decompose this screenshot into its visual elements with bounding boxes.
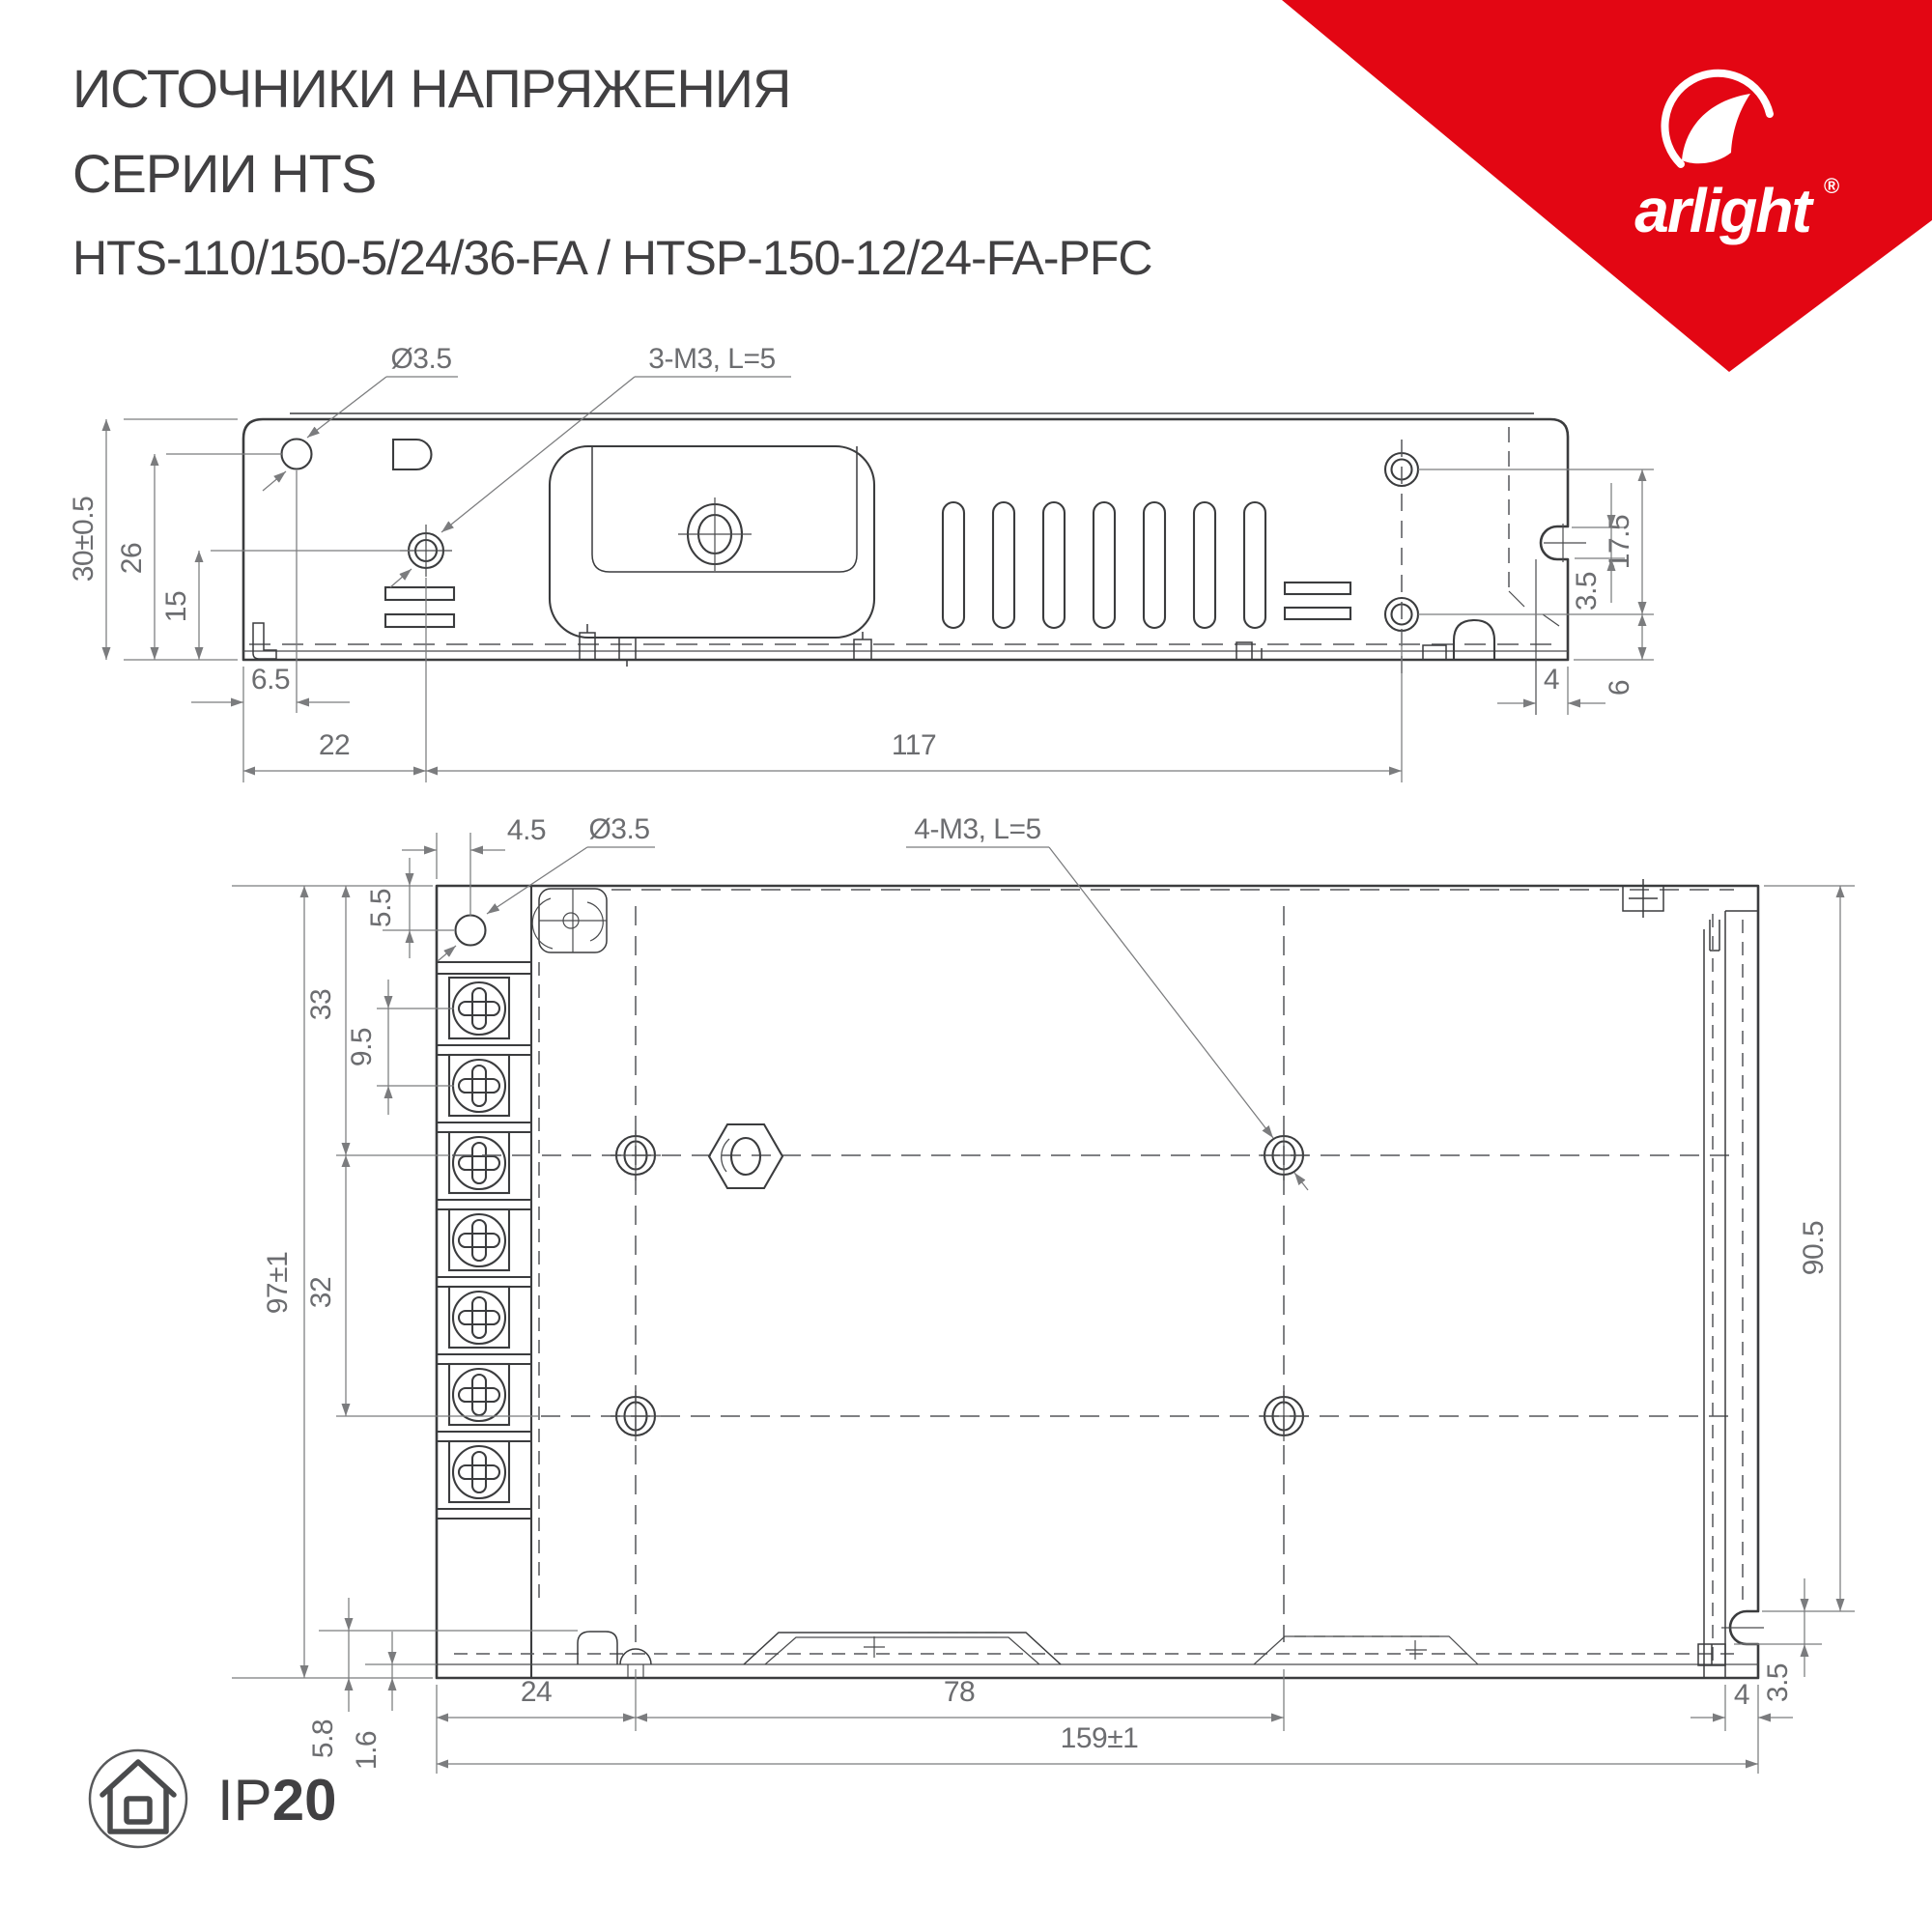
ip-rating-text: IP20 (217, 1768, 336, 1833)
ip-value: 20 (272, 1768, 337, 1833)
side-arch-tab (1454, 620, 1494, 660)
brand-corner: arlight ® (1282, 0, 1932, 372)
ip-prefix: IP (217, 1768, 272, 1833)
indoor-use-icon (102, 1762, 174, 1832)
side-slot (385, 614, 454, 627)
terminal-cell (437, 1209, 531, 1287)
dim-plan-row1-top: 33 (305, 989, 337, 1020)
side-slot (1285, 582, 1350, 594)
callout-side-hole: Ø3.5 (390, 343, 451, 375)
datasheet-drawing: arlight ® (0, 0, 1932, 1932)
plan-bottom-bridge (744, 1633, 1061, 1664)
side-view-case-outline (243, 419, 1568, 660)
dim-side-screw-left: 22 (319, 729, 350, 761)
dim-plan-length: 159±1 (1061, 1722, 1139, 1754)
terminal-cell (437, 1441, 531, 1519)
arlight-logo-wordmark: arlight (1634, 176, 1814, 245)
strain-relief-block (532, 889, 607, 952)
side-clip (1423, 645, 1446, 660)
dim-side-height: 30±0.5 (68, 497, 99, 582)
side-d-hole (393, 440, 431, 469)
side-slot (385, 587, 454, 600)
dim-side-bottom-hole: 6 (1604, 680, 1635, 696)
callout-side-screws: 3-M3, L=5 (648, 343, 775, 375)
dim-side-notch: 3.5 (1571, 572, 1603, 611)
ip-rating: IP20 (90, 1750, 336, 1847)
dim-plan-lip: 4 (1734, 1679, 1749, 1711)
plan-view-drawing: 4.5 Ø3.5 4-M3, L=5 5.5 33 9.5 (232, 813, 1855, 1774)
dim-side-screw-bottom: 15 (160, 591, 192, 622)
dim-plan-row-span: 32 (305, 1277, 337, 1308)
terminal-cell (437, 1055, 531, 1132)
dim-plan-hole-left: 4.5 (507, 814, 546, 846)
dim-plan-sheet: 1.6 (351, 1731, 383, 1770)
dim-side-lip: 4 (1544, 664, 1559, 696)
plan-case-outline (437, 886, 1758, 1678)
side-clip (854, 632, 871, 660)
hex-nut (709, 1124, 782, 1188)
dim-plan-terminal-pitch: 9.5 (346, 1028, 378, 1066)
side-slot (1285, 608, 1350, 619)
dim-side-hole-left: 6.5 (251, 664, 290, 696)
dim-plan-notch: 3.5 (1762, 1663, 1794, 1702)
plan-bottom-hook (578, 1632, 617, 1664)
terminal-cell (437, 1132, 531, 1209)
terminal-cell (437, 1287, 531, 1364)
callout-plan-screws: 4-M3, L=5 (914, 813, 1040, 845)
side-l-bracket (253, 623, 276, 659)
plan-right-clip (1710, 920, 1719, 951)
side-view-dimensions: 30±0.5 26 15 6.5 22 117 17.5 6 3. (68, 343, 1654, 782)
dim-side-mount-span: 117 (892, 729, 936, 761)
plan-view-dimensions: 4.5 Ø3.5 4-M3, L=5 5.5 33 9.5 (232, 813, 1855, 1774)
plan-mounting-holes (611, 1130, 1309, 1441)
dim-plan-hole-top: 5.5 (365, 889, 397, 927)
side-vent-slots (943, 502, 1265, 628)
dim-plan-col-span: 78 (944, 1676, 975, 1708)
plan-bottom-bridge-2 (1254, 1636, 1478, 1664)
dim-plan-depth: 90.5 (1798, 1221, 1830, 1275)
terminal-cell (437, 1364, 531, 1441)
plan-hole-top-left (456, 916, 486, 946)
plan-bottom-dome (620, 1649, 651, 1664)
registered-mark: ® (1824, 174, 1839, 198)
side-view-drawing: 30±0.5 26 15 6.5 22 117 17.5 6 3. (68, 343, 1654, 782)
dim-plan-height: 97±1 (262, 1252, 294, 1315)
side-hole-left (282, 440, 312, 469)
terminal-cell (437, 978, 531, 1055)
dim-side-right-span: 17.5 (1604, 515, 1635, 569)
side-recessed-panel (550, 446, 874, 638)
dim-plan-col1: 24 (521, 1676, 552, 1708)
dim-side-hole-bottom: 26 (116, 543, 148, 574)
terminal-block (437, 978, 531, 1519)
dim-plan-tab-height: 5.8 (307, 1719, 339, 1758)
callout-plan-hole: Ø3.5 (588, 813, 649, 845)
